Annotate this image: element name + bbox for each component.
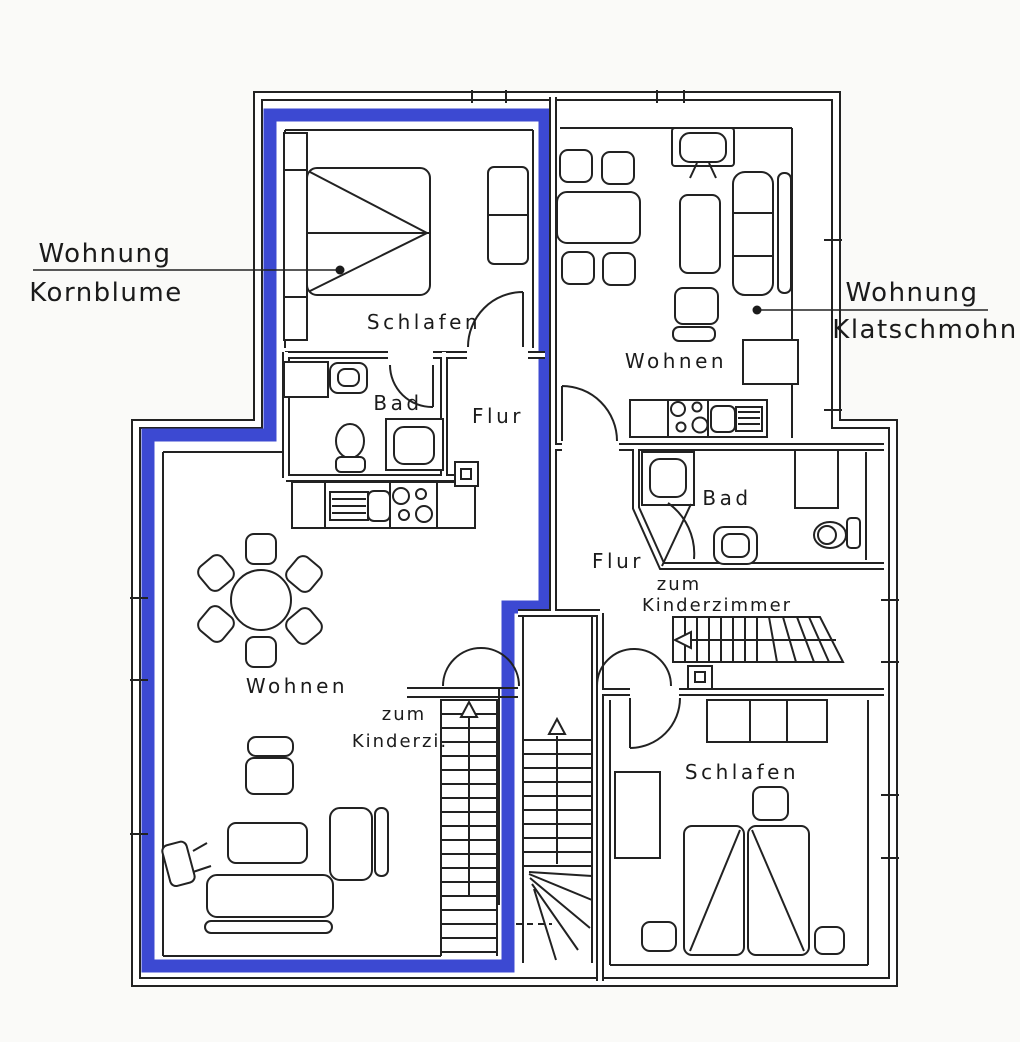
armchair-seat [246, 758, 293, 794]
sofa-side-seat [330, 808, 372, 880]
label-klatschmohn-wohnen: Wohnen [625, 349, 727, 373]
bed-headboard [284, 133, 307, 340]
sink-basin [711, 406, 735, 432]
label-kornblume-stairs-line1: zum [382, 704, 426, 725]
dining-table [557, 192, 640, 243]
kornblume-leader-dot [336, 266, 345, 275]
tall-cabinet [615, 772, 660, 858]
toilet-base [336, 457, 365, 472]
klatschmohn-kitchen [630, 400, 767, 437]
easy-chair [675, 288, 718, 324]
round-dining-table [231, 570, 291, 630]
chair-4 [246, 637, 276, 667]
dining-chair-3 [562, 252, 594, 284]
label-kornblume-schlafen: Schlafen [367, 310, 481, 334]
chair-1 [246, 534, 276, 564]
label-kornblume-bad: Bad [373, 391, 422, 415]
bath-cabinet [284, 362, 328, 397]
bathtub [795, 450, 838, 508]
callout-klatschmohn-line1: Wohnung [845, 278, 978, 308]
sofa-back [205, 921, 332, 933]
callout-kornblume-line2: Kornblume [29, 278, 182, 308]
klatschmohn-leader-dot [753, 306, 762, 315]
floor-plan-page: Wohnung Kornblume Wohnung Klatschmohn Sc… [0, 0, 1020, 1042]
sofa-armrest [778, 173, 791, 293]
switch-box [688, 666, 712, 689]
nightstand-right [815, 927, 844, 954]
television [680, 133, 726, 162]
sideboard [680, 195, 720, 273]
toilet-bowl [336, 424, 364, 458]
nightstand-left [642, 922, 676, 951]
label-klatschmohn-stairs-line2: Kinderzimmer [642, 595, 792, 616]
armchair-back [248, 737, 293, 756]
double-bed [307, 168, 430, 295]
floor-plan-canvas: Wohnung Kornblume Wohnung Klatschmohn Sc… [0, 0, 1020, 1042]
shower-tray [394, 427, 434, 464]
label-klatschmohn-bad: Bad [702, 486, 751, 510]
sofa [733, 172, 773, 295]
dining-chair-1 [560, 150, 592, 182]
washbasin-bowl [722, 534, 749, 557]
shower-tray [650, 459, 686, 497]
label-klatschmohn-flur: Flur [592, 549, 644, 573]
label-kornblume-stairs-line2: Kinderzi. [352, 731, 448, 752]
label-kornblume-wohnen: Wohnen [246, 674, 348, 698]
label-klatschmohn-stairs-line1: zum [657, 574, 701, 595]
toilet-tank [847, 518, 860, 548]
sink-basin [368, 491, 390, 521]
callout-kornblume-line1: Wohnung [38, 239, 171, 269]
dining-chair-4 [603, 253, 635, 285]
sofa-side-back [375, 808, 388, 876]
sofa-seat [207, 875, 333, 917]
coffee-table [228, 823, 307, 863]
washbasin-bowl [338, 369, 359, 386]
dining-chair-2 [602, 152, 634, 184]
cabinet [743, 340, 798, 384]
callout-klatschmohn-line2: Klatschmohn [832, 315, 1017, 345]
nightstand-top [753, 787, 788, 820]
label-klatschmohn-schlafen: Schlafen [685, 760, 799, 784]
switch-box [455, 462, 478, 486]
wardrobe [707, 700, 827, 742]
ottoman [673, 327, 715, 341]
label-kornblume-flur: Flur [472, 404, 524, 428]
